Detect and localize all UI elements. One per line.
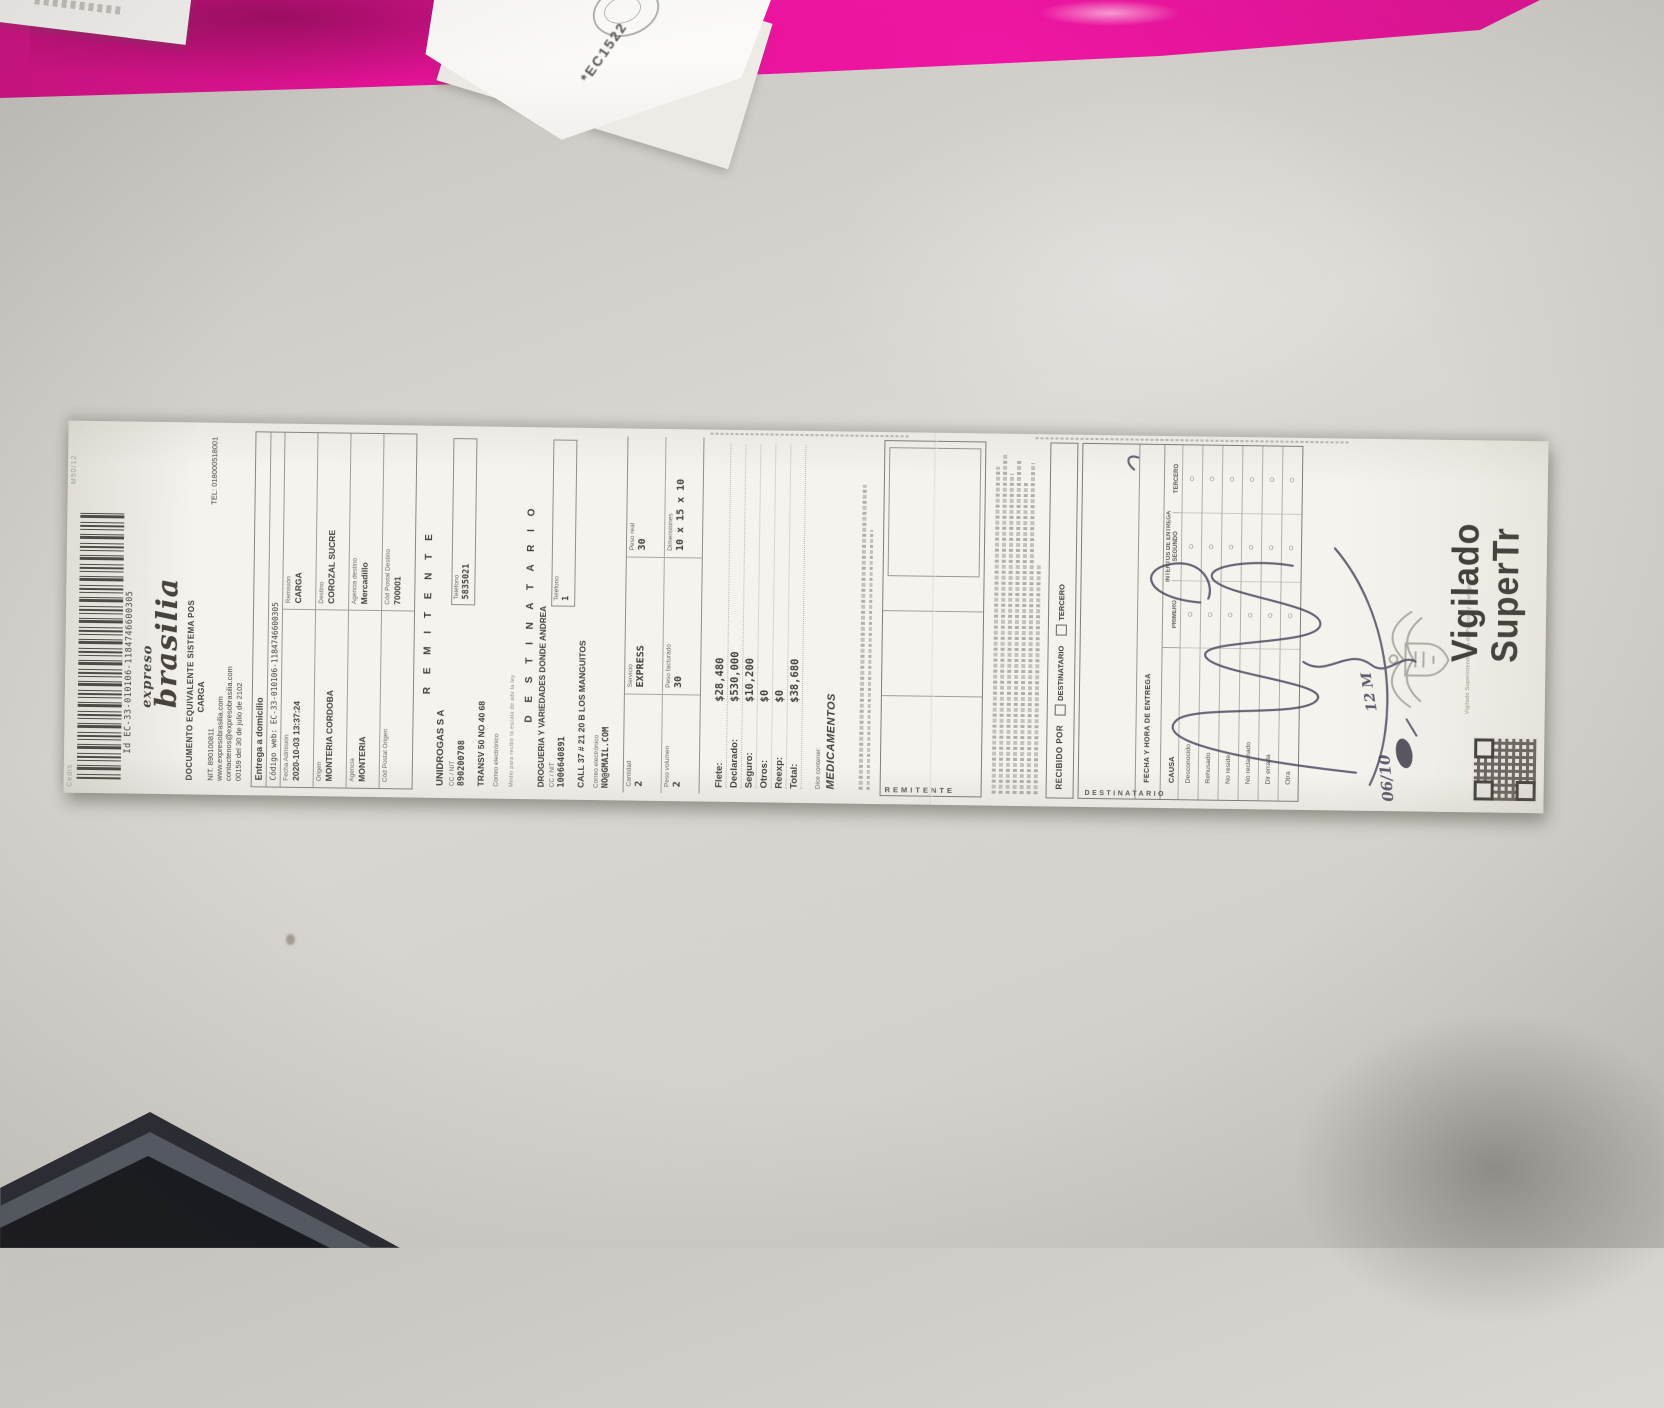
cause-bubble: ○ [1202, 446, 1222, 514]
sender-block: UNIDROGAS S A CC / NIT 890200708 Teléfon… [435, 438, 520, 787]
sender-phone: 5835021 [461, 444, 473, 599]
web-code-value: EC-33-010106-1184746600305 [270, 602, 281, 724]
info-cell: Cód Postal Origen [380, 612, 414, 789]
cause-bubble: ○ [1282, 447, 1302, 515]
info-row: AgenciaMONTERIAAgencia destinoMercadillo [347, 434, 385, 788]
qr-code [1471, 736, 1538, 803]
info-cell: DestinoCOROZAL SUCRE [316, 433, 350, 611]
totals-value: $10,200 [744, 658, 757, 702]
pink-folder [0, 0, 1664, 110]
contents-value: MEDICAMENTOS [825, 445, 842, 789]
field-value: 2020-10-03 13:37:24 [291, 616, 303, 781]
totals-label: Seguro: [744, 702, 756, 788]
checkbox-item: DESTINATARIO [1055, 646, 1067, 716]
field-value: Mercadillo [359, 440, 371, 605]
cause-bubble: ○ [1281, 514, 1301, 582]
cause-label: Dir errada [1264, 650, 1273, 801]
recipient-id: 1006640891 [557, 617, 569, 788]
field-value: 2 [672, 701, 684, 787]
sender-email-label: Correo electrónico [493, 439, 505, 787]
edge-fine-print [709, 433, 909, 438]
recipient-phone: 1 [561, 446, 573, 601]
field-label: Dimensiones [667, 443, 676, 551]
field-label: Cód Postal Origen [382, 618, 391, 783]
cause-bubble: ○ [1220, 581, 1240, 649]
recipient-section-title: D E S T I N A T A R I O [523, 427, 539, 799]
info-cell: Fecha Admisión2020-10-03 13:37:24 [281, 610, 315, 787]
shipment-info-box: Entrega a domicilio Código web: EC-33-01… [251, 431, 418, 789]
brand-line2: brasilia [152, 422, 185, 708]
field-value: 10 x 15 x 10 [675, 443, 688, 551]
terms-paragraph [992, 434, 1043, 807]
package-cell: ServicioEXPRESS [625, 557, 664, 694]
info-cell: Cód Postal Destino700001 [382, 434, 416, 612]
package-cell: Dimensiones10 x 15 x 10 [665, 437, 704, 558]
cause-label: No reclamado [1244, 650, 1253, 801]
field-value: 2 [634, 700, 646, 786]
totals-label: Reexp: [774, 703, 786, 789]
package-cell: Peso facturado30 [663, 558, 702, 695]
edge-code-left: Cedis [67, 764, 74, 787]
cause-bubble: ○ [1200, 581, 1220, 649]
recipient-phone-box: Teléfono 1 [551, 439, 577, 607]
checkbox [1056, 625, 1067, 636]
recipient-signature-area [1078, 444, 1139, 799]
sender-section-title: R E M I T E N T E [421, 426, 437, 798]
package-cell: Peso real30 [627, 437, 666, 558]
package-cell: Peso volumen2 [662, 695, 700, 794]
watchdog-line2: SuperTr [1486, 523, 1528, 663]
fine-print-line [859, 485, 867, 790]
package-row: Cantidad2ServicioEXPRESSPeso real30 [624, 437, 667, 793]
cause-bubble: ○ [1221, 514, 1241, 582]
handwritten-date: 06/10 [1375, 753, 1397, 802]
attempt-col-label: PRIMERO [1170, 581, 1180, 648]
received-by-label: RECIBIDO POR [1055, 725, 1065, 790]
watchdog-logo-text: Vigilado SuperTr [1445, 522, 1528, 663]
cause-bubble: ○ [1182, 445, 1202, 513]
totals-value: $38,680 [789, 659, 802, 703]
sender-address: TRANSV 50 NO 40 68 [476, 438, 491, 786]
totals-value: $530,000 [729, 651, 742, 702]
cause-bubble: ○ [1181, 513, 1201, 581]
checkbox-item: TERCERO [1056, 584, 1068, 636]
cause-bubble: ○ [1261, 514, 1281, 582]
totals-value: $0 [774, 690, 786, 703]
desk-glare [820, 90, 1460, 470]
filled-oval-mark [1393, 737, 1415, 770]
cause-bubble: ○ [1201, 513, 1221, 581]
totals-label: Flete: [714, 702, 726, 788]
info-cell: Agencia destinoMercadillo [349, 434, 383, 612]
contents-block: Dice contener: MEDICAMENTOS [807, 445, 842, 789]
edge-code-right: M50/12 [71, 455, 78, 484]
sender-note: Medio para recibir la escala de adv la l… [509, 439, 520, 787]
totals-value: $0 [759, 690, 771, 703]
cause-rows: Desconocido○○○Rehusado○○○No reside○○○No … [1177, 445, 1302, 801]
watchdog-line1: Vigilado [1445, 522, 1487, 662]
field-label: Peso volumen [664, 701, 672, 787]
field-value: EXPRESS [635, 563, 648, 687]
contents-label: Dice contener: [815, 747, 823, 789]
edge-fine-print [1033, 437, 1348, 444]
package-grid: Cantidad2ServicioEXPRESSPeso real30Peso … [623, 436, 705, 793]
sender-id: 890200708 [457, 615, 469, 786]
field-label: Cantidad [626, 700, 634, 786]
totals: Flete:$28,480Declarado:$530,000Seguro:$1… [712, 444, 807, 789]
cause-bubble: ○ [1240, 582, 1260, 650]
cause-label: Desconocido [1184, 649, 1193, 800]
field-value: 700001 [392, 440, 404, 605]
info-row: Fecha Admisión2020-10-03 13:37:24Remisió… [281, 433, 319, 787]
scrap-print-marks [34, 0, 124, 15]
cause-bubble: ○ [1241, 514, 1261, 582]
doc-header: DOCUMENTO EQUIVALENTE SISTEMA POS CARGA … [185, 436, 248, 781]
shipping-receipt: Cedis M50/12 Id EC-33-010106-11847466003… [63, 421, 1548, 814]
cause-label: No reside [1224, 649, 1233, 800]
info-row: OrigenMONTERIA CORDOBADestinoCOROZAL SUC… [314, 433, 352, 787]
info-cell: AgenciaMONTERIA [347, 611, 381, 788]
checkbox-label: DESTINATARIO [1056, 646, 1066, 701]
delivery-box: DESTINATARIO FECHA Y HORA DE ENTREGA CAU… [1077, 443, 1303, 802]
sender-phone-box: Teléfono 5835021 [451, 438, 477, 606]
checkbox-label: TERCERO [1057, 584, 1067, 621]
pen-tick [1406, 719, 1416, 735]
barcode-id: Id EC-33-010106-1184746600305 [123, 422, 138, 754]
receipt-checkboxes: DESTINATARIOTERCERO [1055, 584, 1068, 716]
sender-name: UNIDROGAS S A [435, 438, 451, 786]
cause-label: CAUSA [1160, 648, 1179, 799]
info-rows: Fecha Admisión2020-10-03 13:37:24Remisió… [281, 433, 417, 789]
barcode-id-label: Id [123, 742, 133, 753]
info-row: Cód Postal OrigenCód Postal Destino70000… [380, 434, 417, 788]
recipient-block: DROGUERIA Y VARIEDADES DONDE ANDREA CC /… [537, 439, 616, 788]
recipient-address: CALL 37 # 21 20 B LOS MANGUITOS [576, 440, 591, 788]
cause-bubble: ○ [1180, 581, 1200, 649]
package-cell: Cantidad2 [624, 694, 662, 793]
received-by-row: RECIBIDO POR DESTINATARIOTERCERO [1045, 442, 1078, 798]
field-value: COROZAL SUCRE [326, 439, 338, 604]
barcode-id-value: EC-33-010106-1184746600305 [123, 591, 135, 737]
cause-bubble: ○ [1242, 446, 1262, 514]
field-value: MONTERIA CORDOBA [324, 617, 336, 782]
totals-label: Otros: [759, 702, 771, 788]
cause-label: Otra [1284, 650, 1293, 801]
totals-label: Total: [789, 703, 801, 789]
desk-speck [286, 934, 295, 945]
field-value: MONTERIA [357, 617, 369, 782]
cause-bubble: ○ [1280, 582, 1300, 650]
attempt-col-label: TERCERO [1172, 445, 1182, 513]
folder-highlight [1040, 0, 1180, 26]
barcode [77, 511, 125, 780]
fine-print-small [859, 432, 875, 804]
totals-value: $28,480 [714, 657, 727, 701]
package-row: Peso volumen2Peso facturado30Dimensiones… [662, 437, 704, 793]
brand-logo: expreso brasilia [139, 422, 184, 795]
cause-bubble: ○ [1222, 446, 1242, 514]
field-value: 30 [637, 443, 650, 551]
cause-bubble: ○ [1262, 446, 1282, 514]
corner-shadow [1184, 928, 1664, 1408]
field-value: CARGA [293, 439, 305, 604]
cause-bubble: ○ [1260, 582, 1280, 650]
fine-print-line [866, 529, 873, 789]
info-cell: OrigenMONTERIA CORDOBA [314, 611, 348, 788]
company-tel: TEL: 018000518001 [209, 437, 219, 505]
attempt-col-label: SEGUNDO [1171, 513, 1181, 581]
web-code-label: Código web: [269, 729, 279, 781]
field-value: 30 [673, 564, 686, 688]
info-cell: RemisiónCARGA [283, 433, 317, 611]
cause-label: Rehusado [1204, 649, 1213, 800]
totals-label: Declarado: [729, 702, 741, 788]
checkbox [1055, 705, 1066, 716]
terms-line [1034, 564, 1041, 795]
